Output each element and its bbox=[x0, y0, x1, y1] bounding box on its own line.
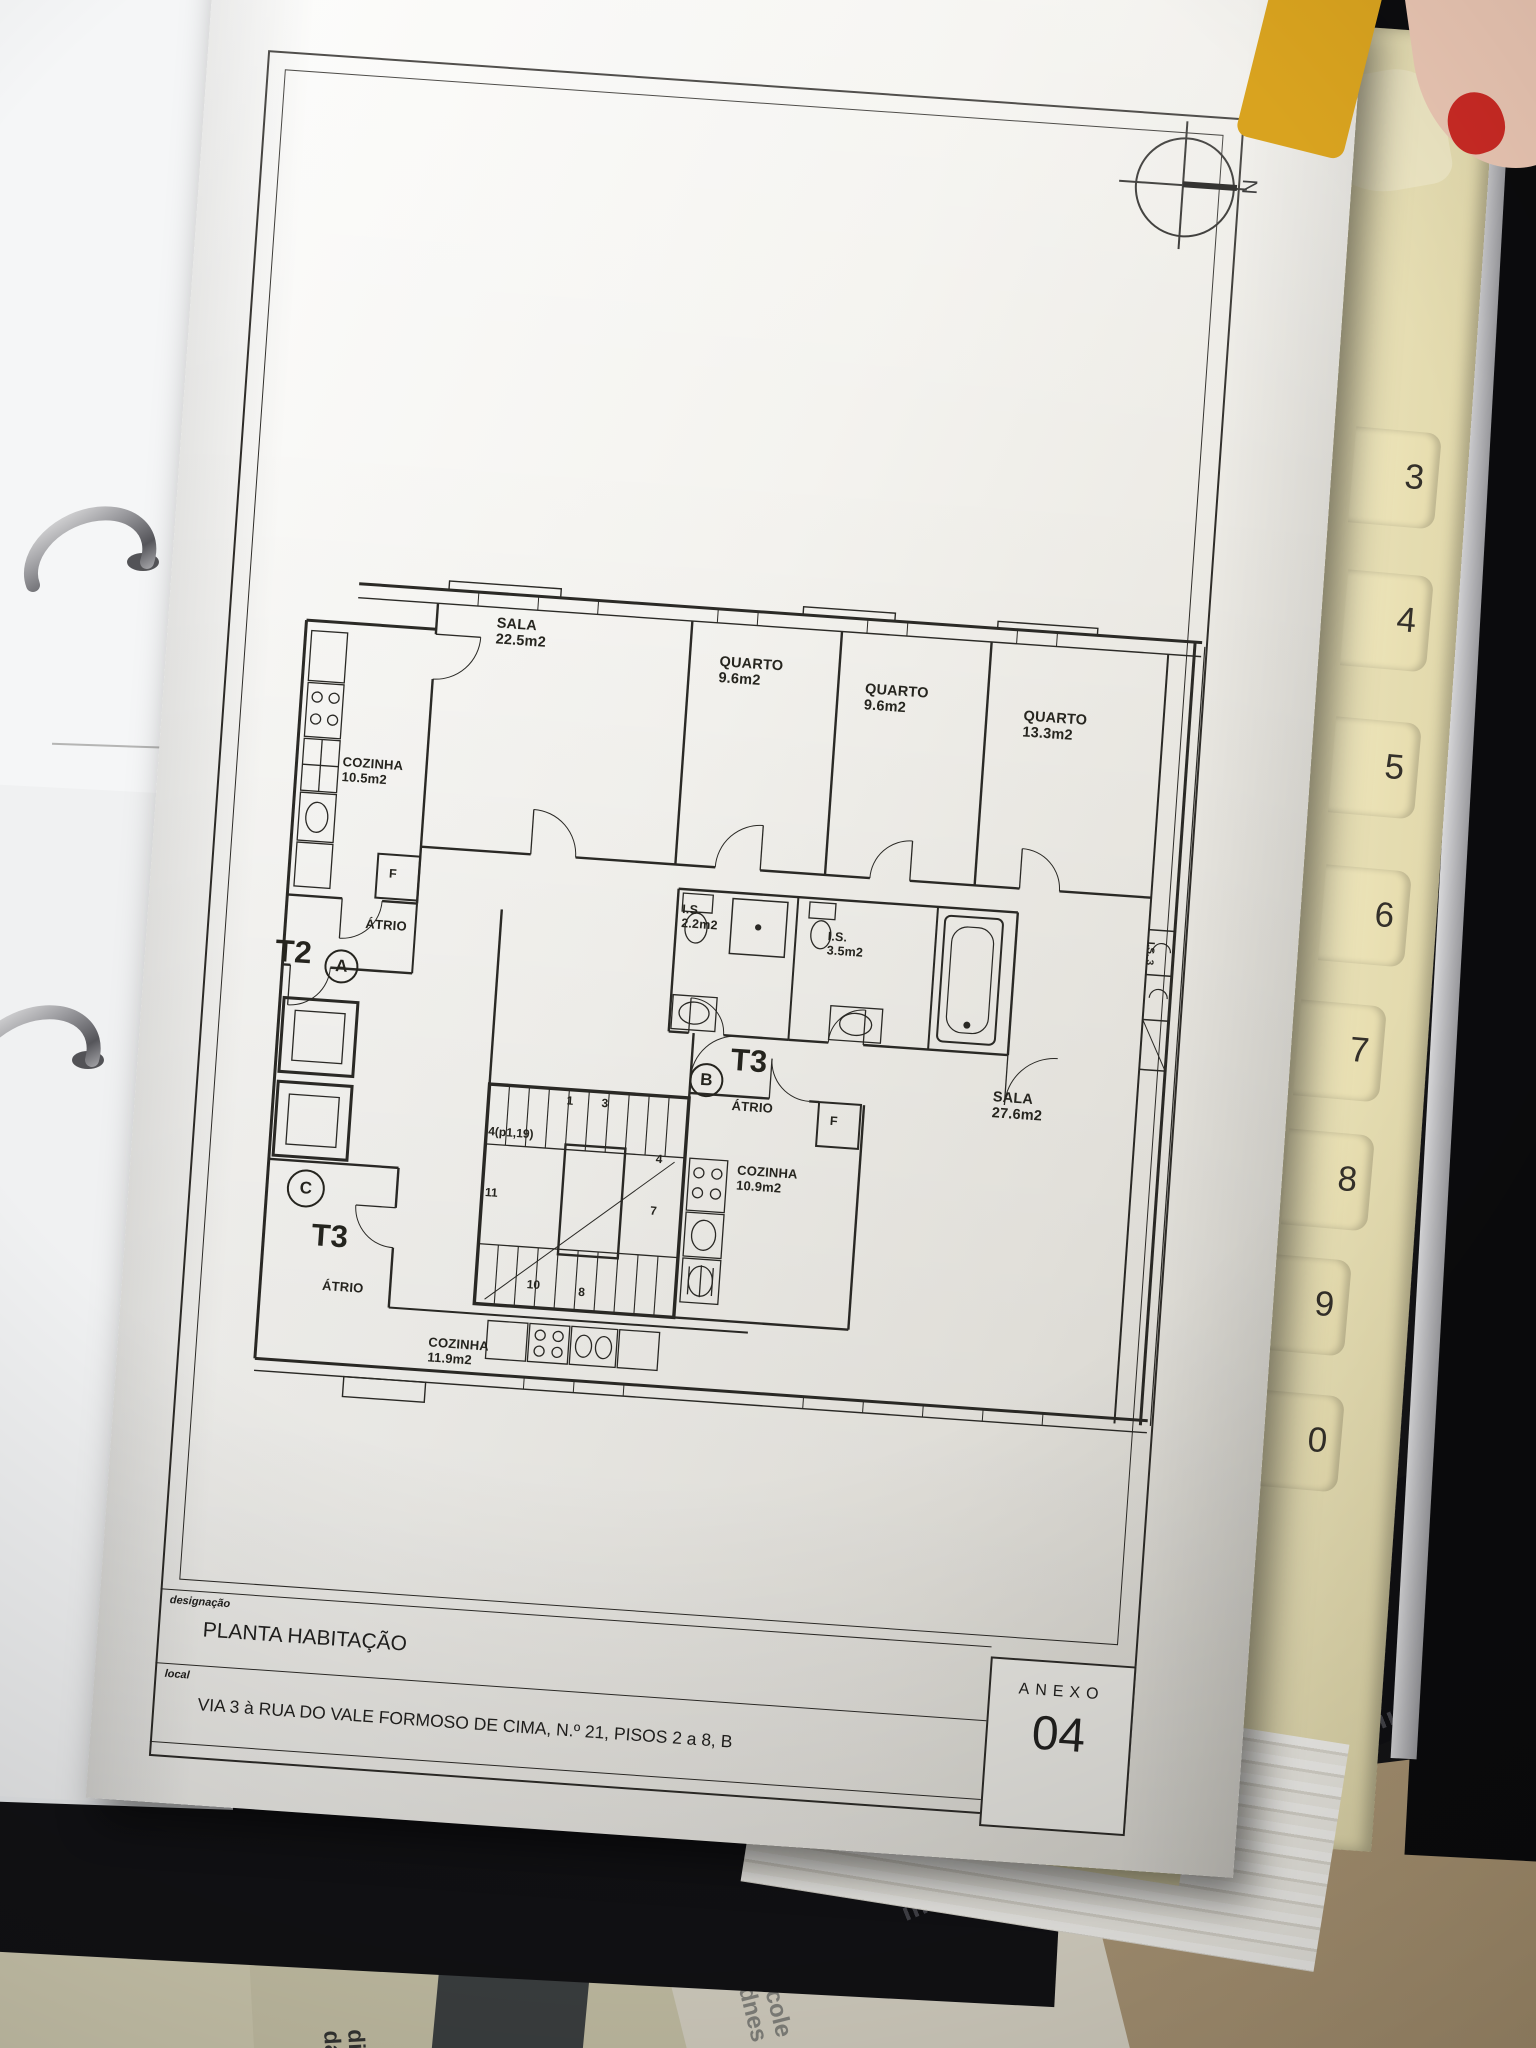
unit-label-t3c: T3 bbox=[310, 1218, 349, 1255]
stairwell bbox=[474, 1084, 689, 1317]
compass-north-label: N bbox=[1236, 178, 1261, 195]
room-label-cozinha-t2: COZINHA10.5m2 bbox=[341, 755, 404, 788]
binder-ring-top bbox=[15, 490, 185, 610]
index-tab: 4 bbox=[1340, 569, 1434, 672]
index-tab: 8 bbox=[1281, 1128, 1375, 1231]
room-label-atrio-t3b: ÁTRIO bbox=[731, 1099, 773, 1116]
floor-plan-svg bbox=[240, 570, 1218, 1492]
stair-number: 3 bbox=[601, 1096, 609, 1110]
room-label-sala-t2: SALA22.5m2 bbox=[495, 615, 548, 651]
annex-label: ANEXO bbox=[990, 1678, 1133, 1706]
room-label-is2: I.S.3.5m2 bbox=[826, 929, 864, 959]
room-label-cozinha-t3b: COZINHA10.9m2 bbox=[736, 1164, 799, 1197]
index-tab: 6 bbox=[1318, 864, 1412, 967]
designacao-label: designação bbox=[169, 1594, 230, 1610]
annex-number: 04 bbox=[986, 1702, 1131, 1767]
unit-label-t2: T2 bbox=[274, 934, 313, 971]
binder-ring-bottom bbox=[0, 980, 130, 1110]
index-tab: 5 bbox=[1328, 716, 1422, 819]
stair-number: 4 bbox=[655, 1152, 663, 1166]
index-tab: 7 bbox=[1293, 999, 1387, 1102]
bathrooms bbox=[669, 889, 1018, 1055]
bedroom-walls bbox=[417, 603, 1168, 954]
index-tab: 3 bbox=[1348, 426, 1442, 529]
room-label-sala-t3b: SALA27.6m2 bbox=[991, 1089, 1044, 1125]
door-arcs bbox=[271, 626, 1084, 1293]
planner-word: day bbox=[320, 2030, 346, 2048]
local-value: VIA 3 à RUA DO VALE FORMOSO DE CIMA, N.º… bbox=[197, 1694, 733, 1752]
designacao-value: PLANTA HABITAÇÃO bbox=[202, 1618, 408, 1656]
stair-number: 1 bbox=[566, 1093, 574, 1107]
t2-kitchen bbox=[282, 620, 436, 973]
stair-number: 11 bbox=[485, 1185, 499, 1200]
planner-word: di bbox=[344, 2029, 370, 2048]
room-label-is1: I.S.2.2m2 bbox=[681, 902, 719, 932]
room-label-atrio-t3c: ÁTRIO bbox=[322, 1279, 364, 1296]
local-label: local bbox=[164, 1668, 190, 1682]
floor-plan-page: N bbox=[86, 0, 1364, 1878]
room-label-cozinha-t3c: COZINHA11.9m2 bbox=[427, 1335, 490, 1368]
appliance-mark-f: F bbox=[389, 867, 398, 882]
appliance-mark-f: F bbox=[829, 1114, 838, 1129]
photo-of-floor-plan-in-binder: Lundi Montag Lunes Ma Di M di day rcole … bbox=[0, 0, 1536, 2048]
stair-number: 10 bbox=[526, 1277, 540, 1292]
annex-box: ANEXO 04 bbox=[979, 1656, 1137, 1836]
room-label-quarto-2: QUARTO9.6m2 bbox=[863, 681, 929, 718]
stair-number: 7 bbox=[650, 1204, 658, 1218]
room-label-quarto-1: QUARTO9.6m2 bbox=[718, 654, 784, 691]
room-label-is3: I.S. 3 bbox=[1144, 941, 1157, 965]
room-label-quarto-3: QUARTO13.3m2 bbox=[1022, 708, 1088, 745]
unit-label-t3b: T3 bbox=[730, 1043, 769, 1080]
room-label-atrio-t2: ÁTRIO bbox=[365, 917, 407, 934]
stair-number: 8 bbox=[578, 1285, 586, 1299]
